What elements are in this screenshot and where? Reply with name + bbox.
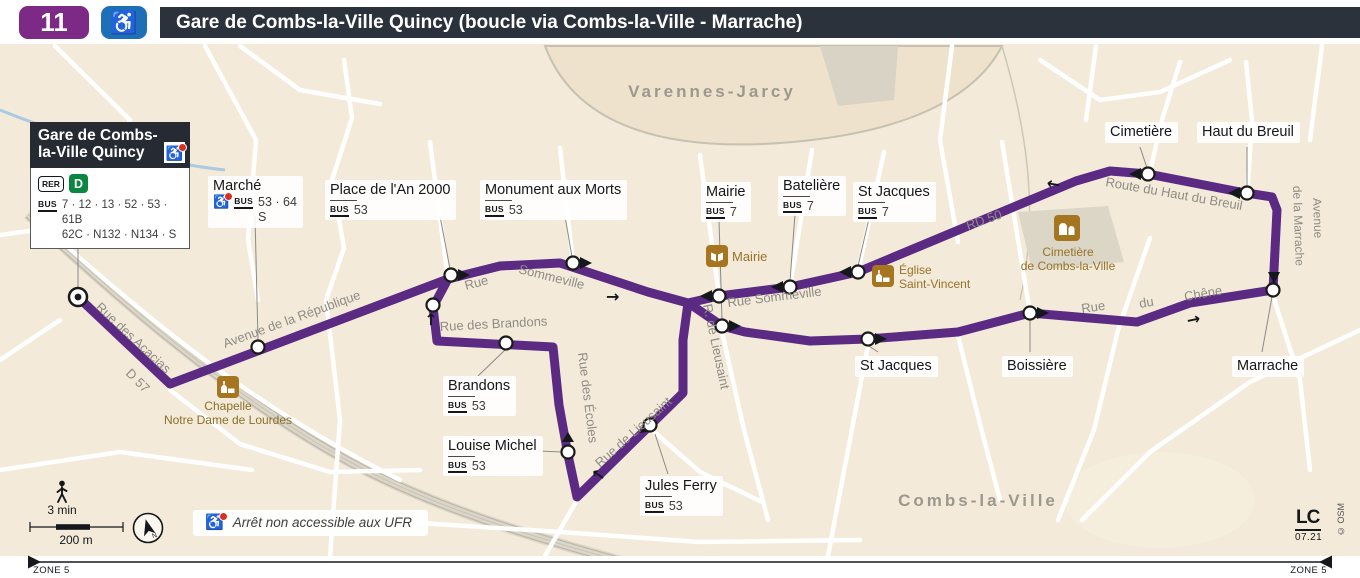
terminus-center-dot xyxy=(75,294,82,301)
scale-time: 3 min xyxy=(47,503,76,517)
stop-marker-st-jacques-nord[interactable] xyxy=(852,266,865,279)
street-label-du: du xyxy=(1138,294,1155,311)
compass-icon: N xyxy=(134,514,163,543)
terminus-connections: RER D BUS 7 · 12 · 13 · 52 · 53 · 61B 62… xyxy=(30,168,190,249)
bus-icon: BUS xyxy=(38,200,57,212)
bus-icon: BUS xyxy=(448,461,467,473)
bus-icon: BUS xyxy=(234,197,253,209)
bus-icon: BUS xyxy=(858,207,877,219)
poi-label-mairie: Mairie xyxy=(732,250,767,265)
stop-label-monument-aux-morts[interactable]: Monument aux Morts BUS 53 xyxy=(480,180,627,220)
map-date: 07.21 xyxy=(1295,532,1322,543)
stop-label-bateliere[interactable]: Batelière BUS 7 xyxy=(778,176,846,216)
free-arrow-north: → xyxy=(421,313,440,326)
terminus-card[interactable]: Gare de Combs- la-Ville Quincy ♿ RER D B… xyxy=(30,122,190,249)
ufr-not-accessible-icon: ♿ xyxy=(213,195,229,208)
cemetery-icon xyxy=(1054,215,1080,241)
poi-label-eglise: ÉgliseSaint-Vincent xyxy=(899,264,970,292)
church-icon xyxy=(217,376,239,398)
stop-marker-cimetiere[interactable] xyxy=(1142,168,1155,181)
stop-label-jules-ferry[interactable]: Jules Ferry BUS 53 xyxy=(640,476,723,516)
bus-icon: BUS xyxy=(645,501,664,513)
osm-credit: © OSM xyxy=(1336,503,1346,536)
legend-text: Arrêt non accessible aux UFR xyxy=(233,515,412,530)
header: 11 ♿ Gare de Combs-la-Ville Quincy (bouc… xyxy=(0,0,1360,44)
rer-d-badge: D xyxy=(69,174,88,193)
area-label-combs-la-ville: Combs-la-Ville xyxy=(898,491,1058,510)
zone-bar xyxy=(0,556,1360,578)
stop-label-brandons[interactable]: Brandons BUS 53 xyxy=(443,376,516,416)
town-hall-icon xyxy=(706,245,728,267)
route-title-bar: Gare de Combs-la-Ville Quincy (boucle vi… xyxy=(160,7,1360,38)
bus-icon: BUS xyxy=(485,205,504,217)
stop-label-cimetiere[interactable]: Cimetière xyxy=(1105,122,1178,143)
route-map-page: → → ← → ← Ru xyxy=(0,0,1360,578)
stop-marker-place-an-2000[interactable] xyxy=(445,269,458,282)
zone-label-right: ZONE 5 xyxy=(1290,565,1327,576)
legend-ufr: ♿ Arrêt non accessible aux UFR xyxy=(193,510,428,536)
stop-label-marrache[interactable]: Marrache xyxy=(1232,356,1304,377)
stop-label-boissiere[interactable]: Boissière xyxy=(1002,356,1073,377)
ufr-not-accessible-icon: ♿ xyxy=(205,515,224,530)
stop-marker-place-an-2000-sud[interactable] xyxy=(427,299,440,312)
cartographer-logo: LC xyxy=(1295,507,1321,531)
stop-marker-mairie-nord[interactable] xyxy=(713,290,726,303)
stop-label-st-jacques-sud[interactable]: St Jacques xyxy=(855,356,938,377)
ufr-not-accessible-icon: ♿ xyxy=(164,142,185,163)
poi-label-chapelle: ChapelleNotre Dame de Lourdes xyxy=(164,400,292,428)
line-number-badge: 11 xyxy=(19,6,89,39)
zone-label-left: ZONE 5 xyxy=(33,565,70,576)
stop-marker-st-jacques-sud[interactable] xyxy=(862,333,875,346)
bus-lines-1: 7 · 12 · 13 · 52 · 53 · 61B xyxy=(62,199,167,226)
stop-label-louise-michel[interactable]: Louise Michel BUS 53 xyxy=(443,436,543,476)
free-arrow-east: → xyxy=(606,287,619,306)
credits: LC 07.21 © OSM xyxy=(1295,507,1322,543)
church-icon xyxy=(872,265,894,287)
scale-distance: 200 m xyxy=(59,533,92,547)
street-label-de-la-marrache: de la Marrache xyxy=(1290,186,1307,267)
street-label-avenue: Avenue xyxy=(1310,198,1325,239)
stop-marker-louise-michel[interactable] xyxy=(562,446,575,459)
terminus-name: Gare de Combs- la-Ville Quincy ♿ xyxy=(30,122,190,168)
stop-marker-boissiere[interactable] xyxy=(1024,307,1037,320)
stop-marker-monument[interactable] xyxy=(567,257,580,270)
bus-icon: BUS xyxy=(448,401,467,413)
stop-marker-brandons[interactable] xyxy=(500,337,513,350)
bus-icon: BUS xyxy=(330,205,349,217)
bus-lines-2: 62C · N132 · N134 · S xyxy=(62,229,176,241)
stop-label-place-an-2000[interactable]: Place de l'An 2000 BUS 53 xyxy=(325,180,456,220)
stop-label-marche[interactable]: Marché ♿ BUS 53 · 64 S xyxy=(208,176,303,228)
stop-label-st-jacques-nord[interactable]: St Jacques BUS 7 xyxy=(853,182,936,222)
stop-label-haut-du-breuil[interactable]: Haut du Breuil xyxy=(1197,122,1300,143)
stop-marker-marche[interactable] xyxy=(252,341,265,354)
bus-icon: BUS xyxy=(783,201,802,213)
stop-label-mairie[interactable]: Mairie BUS 7 xyxy=(701,182,751,222)
rer-icon: RER xyxy=(38,176,64,192)
route-title: Gare de Combs-la-Ville Quincy (boucle vi… xyxy=(176,12,802,34)
bus-icon: BUS xyxy=(706,207,725,219)
poi-label-cimetiere: Cimetièrede Combs-la-Ville xyxy=(1021,246,1115,274)
stop-marker-marrache[interactable] xyxy=(1267,284,1280,297)
wheelchair-icon: ♿ xyxy=(101,6,147,39)
area-label-varennes-jarcy: Varennes-Jarcy xyxy=(628,82,796,101)
